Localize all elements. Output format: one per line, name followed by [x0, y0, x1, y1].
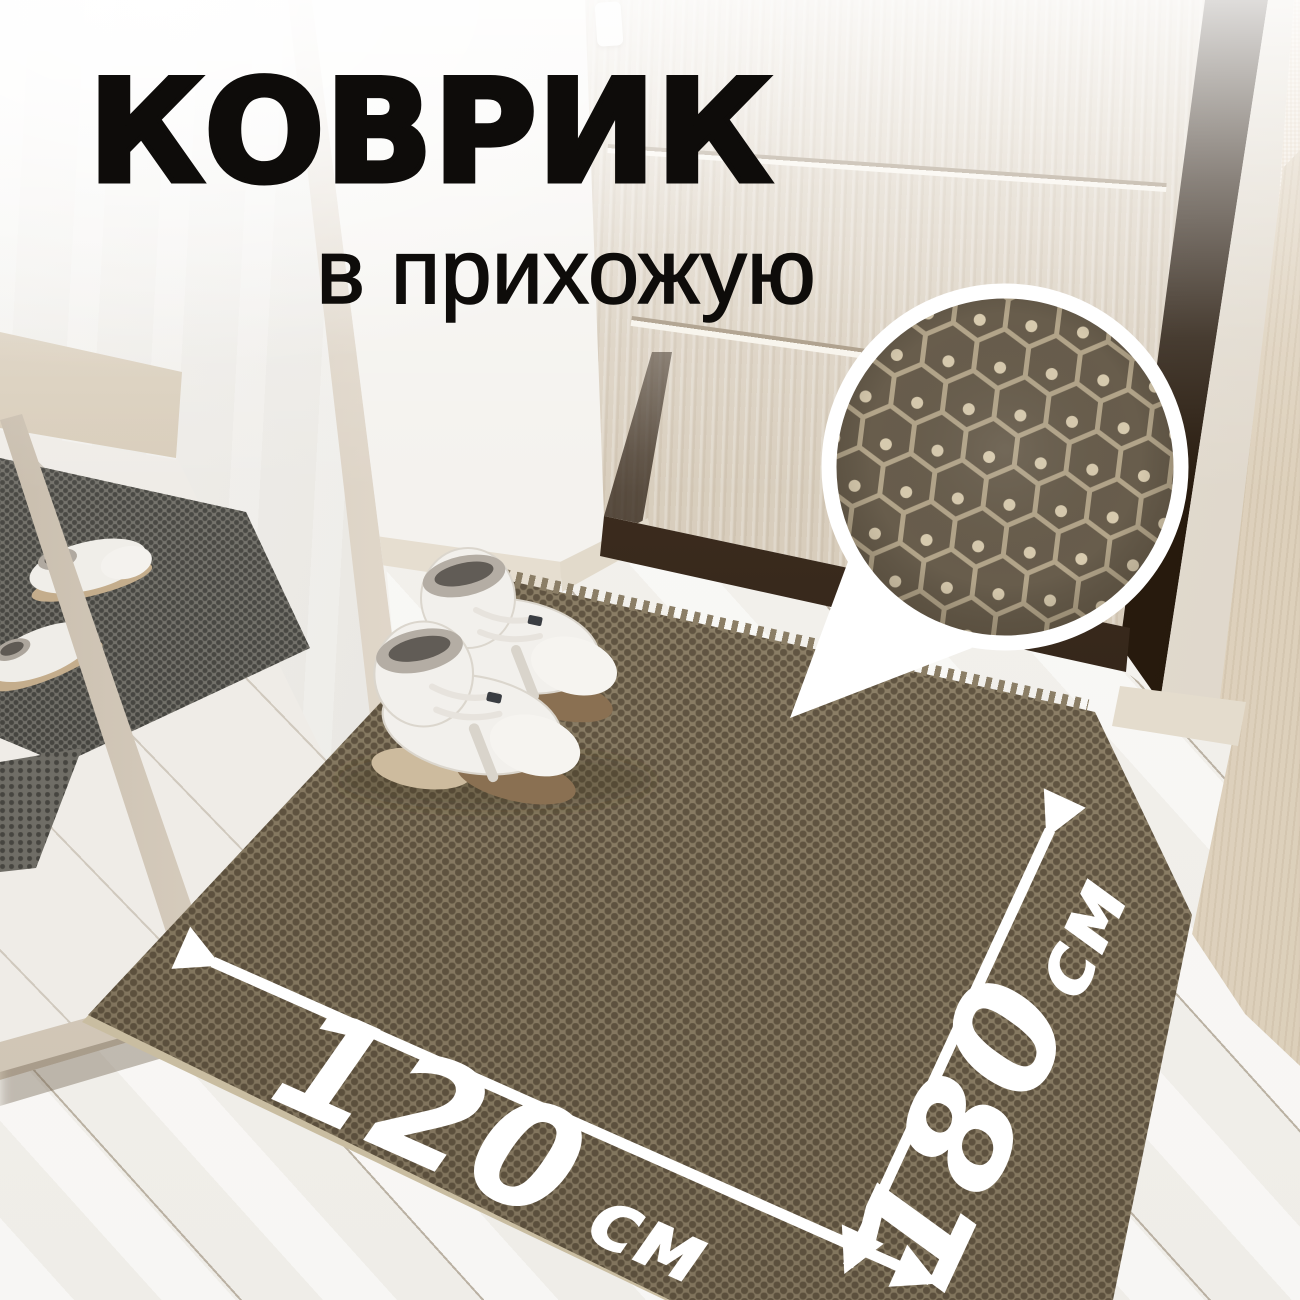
width-unit: см — [575, 1167, 725, 1300]
product-banner: КОВРИК в прихожую — [0, 0, 1300, 1300]
banner-subtitle: в прихожую — [266, 226, 866, 318]
banner-title: КОВРИК — [88, 62, 748, 204]
